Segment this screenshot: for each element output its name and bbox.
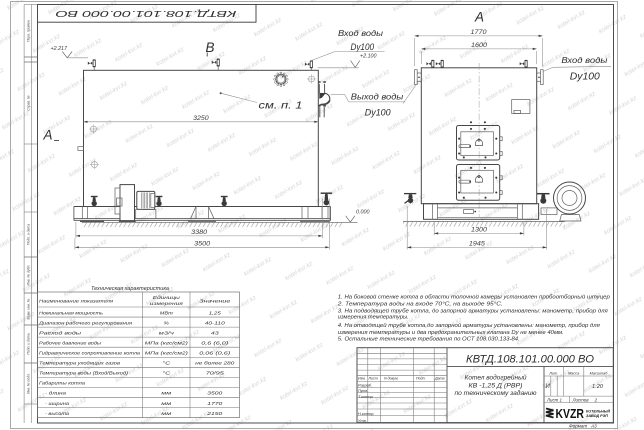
svg-text:5. Остальные технические тр: 5. Остальные технические требования по О… [338,337,520,343]
svg-text:+2.100: +2.100 [360,54,377,60]
svg-text:мм: мм [161,402,172,407]
svg-text:Справ. №: Справ. № [26,95,30,111]
svg-text:измерения температуры.: измерения температуры. [338,315,409,321]
svg-text:3500: 3500 [207,391,222,397]
svg-text:Подп.: Подп. [416,377,426,381]
svg-text:43: 43 [211,330,219,336]
svg-text:МПа (кгс/см2): МПа (кгс/см2) [145,351,189,357]
svg-text:м3/ч: м3/ч [159,330,175,336]
svg-text:Утв.: Утв. [358,418,367,423]
svg-text:Подп. и дата: Подп. и дата [26,333,30,354]
svg-text:1600: 1600 [471,43,488,49]
svg-text:N докум.: N докум. [384,377,399,381]
svg-text:- длина: - длина [45,391,66,397]
svg-text:КВТД.108.101.00.000 ВО: КВТД.108.101.00.000 ВО [466,354,594,366]
svg-text:%: % [164,320,170,326]
svg-text:2. Температура воды на вхо: 2. Температура воды на входе 70°С, на вы… [336,302,502,308]
svg-text:+2.217: +2.217 [51,46,68,52]
svg-text:измерения температуры и два: измерения температуры и два предохраните… [338,330,564,336]
svg-text:Гидравлическое сопротивление к: Гидравлическое сопротивление котла [39,351,140,357]
svg-text:1,25: 1,25 [209,310,221,316]
svg-text:2150: 2150 [206,411,223,417]
svg-text:Расход воды: Расход воды [39,330,82,336]
svg-text:Единицы: Единицы [153,295,181,301]
svg-text:Взам. инв. №: Взам. инв. № [26,298,30,319]
svg-text:40-110: 40-110 [205,320,225,326]
svg-text:см. п. 1: см. п. 1 [259,101,303,112]
svg-text:70/95: 70/95 [206,371,224,377]
svg-text:1770: 1770 [471,30,488,36]
svg-text:KVZR: KVZR [556,406,585,421]
svg-text:Подп. и дата: Подп. и дата [26,224,30,245]
svg-text:Номинальная мощность: Номинальная мощность [39,310,104,316]
svg-text:Листов 2: Листов 2 [572,397,598,402]
svg-text:1300: 1300 [471,227,488,233]
svg-text:3. На подводящей трубе кот: 3. На подводящей трубе котла, до запорно… [338,307,608,314]
svg-text:Пров.: Пров. [358,388,368,393]
svg-text:0.000: 0.000 [356,209,370,215]
svg-text:КВТД.108.101.00.000 ВО: КВТД.108.101.00.000 ВО [54,9,236,18]
svg-text:Наименование показателя: Наименование показателя [39,299,114,305]
svg-text:МВт: МВт [160,310,173,316]
svg-text:Значение: Значение [199,299,230,305]
svg-text:1. На боковой стенке котла: 1. На боковой стенке котла в области топ… [338,294,610,301]
svg-text:Масштаб: Масштаб [590,372,609,376]
svg-text:мм: мм [161,392,172,397]
svg-text:3250: 3250 [193,116,209,122]
svg-text:Котел водогрейный: Котел водогрейный [465,375,528,382]
svg-text:Вход воды: Вход воды [561,56,607,65]
svg-text:0,6 (6,0): 0,6 (6,0) [201,340,229,346]
svg-text:3500: 3500 [194,241,211,247]
svg-text:МПа (кгс/см2): МПа (кгс/см2) [145,340,189,346]
svg-text:- высота: - высота [45,412,69,417]
svg-text:измерения: измерения [150,302,184,307]
svg-text:- ширина: - ширина [45,402,69,407]
svg-text:Разраб.: Разраб. [358,382,372,387]
svg-text:А: А [474,10,484,25]
svg-text:°С: °С [162,371,171,377]
svg-text:И: И [545,383,550,390]
svg-text:0,06 (0,6): 0,06 (0,6) [199,351,231,357]
svg-text:Лист: Лист [368,377,378,381]
svg-text:Рабочее давление воды: Рабочее давление воды [39,340,102,346]
svg-text:Т.контр.: Т.контр. [358,394,374,399]
svg-text:Выход воды: Выход воды [351,93,404,102]
svg-text:Лист 1: Лист 1 [546,397,563,402]
svg-text:Dy100: Dy100 [365,107,392,118]
svg-text:1945: 1945 [469,241,486,247]
svg-text:Dy100: Dy100 [570,71,600,83]
svg-text:Диапазон рабочего регулировани: Диапазон рабочего регулирования [38,320,133,326]
svg-text:°С: °С [162,361,171,367]
svg-text:Формат А3: Формат А3 [569,424,597,429]
svg-text:1770: 1770 [207,401,222,407]
svg-text:Температура воды (Вход/Выход): Температура воды (Вход/Выход) [39,371,128,377]
svg-text:1:20: 1:20 [592,384,604,390]
svg-text:КОТЕЛЬНЫЙ: КОТЕЛЬНЫЙ [586,409,610,413]
svg-text:Масса: Масса [568,372,579,376]
svg-text:Дата: Дата [434,377,444,381]
svg-text:Лит.: Лит. [548,372,558,376]
svg-text:Инв. № дубл.: Инв. № дубл. [26,265,30,286]
svg-text:Изм.: Изм. [358,377,366,381]
svg-text:Dy100: Dy100 [351,42,375,52]
svg-text:Инв. № подл.: Инв. № подл. [26,373,30,394]
svg-text:Техническая характеристика: Техническая характеристика [91,286,169,292]
svg-text:3380: 3380 [191,230,208,236]
svg-text:Габариты котла: Габариты котла [39,381,85,387]
svg-text:не более 280: не более 280 [195,361,234,367]
svg-text:Температура уходящих газов: Температура уходящих газов [39,361,121,367]
svg-text:А: А [43,128,53,143]
svg-text:КВ -1,25 Д (РВР): КВ -1,25 Д (РВР) [469,383,523,389]
svg-text:по техническому заданию: по техническому заданию [455,391,538,397]
svg-text:Н.контр.: Н.контр. [358,411,374,416]
svg-text:мм: мм [161,412,172,417]
svg-text:Вход воды: Вход воды [338,29,383,38]
svg-text:ЗАВОД РЭП: ЗАВОД РЭП [586,414,608,418]
svg-text:Перв. примен.: Перв. примен. [26,19,30,42]
svg-text:4. На отводящей трубе котл: 4. На отводящей трубе котла,до запорной … [338,322,600,329]
